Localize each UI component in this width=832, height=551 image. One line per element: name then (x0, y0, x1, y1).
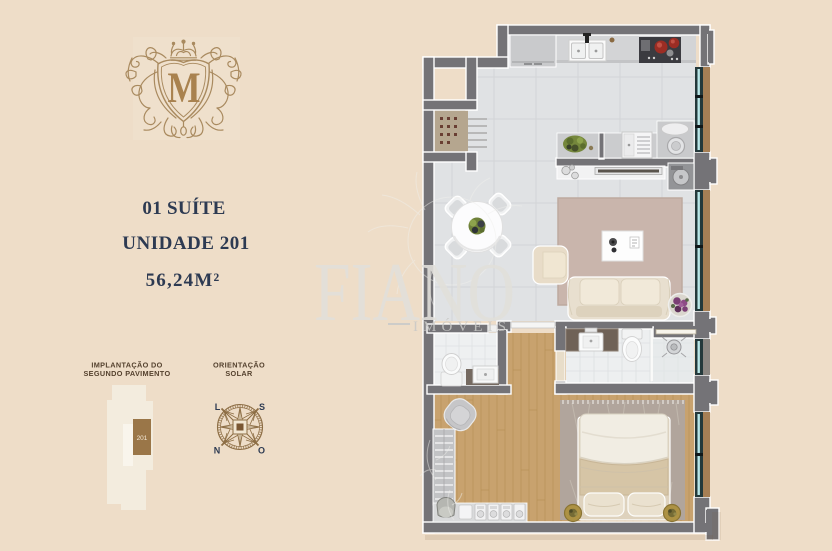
svg-text:201: 201 (137, 435, 148, 442)
svg-text:N: N (214, 446, 221, 456)
svg-text:M: M (168, 65, 201, 112)
svg-text:S: S (259, 402, 265, 412)
svg-text:56,24M²: 56,24M² (146, 270, 221, 291)
svg-text:O: O (258, 446, 265, 456)
svg-text:L: L (215, 402, 221, 412)
svg-text:01 SUÍTE: 01 SUÍTE (142, 197, 225, 219)
svg-text:IMÓVEIS: IMÓVEIS (413, 318, 511, 335)
svg-text:SOLAR: SOLAR (225, 369, 253, 378)
svg-text:UNIDADE 201: UNIDADE 201 (122, 233, 249, 254)
svg-text:SEGUNDO PAVIMENTO: SEGUNDO PAVIMENTO (83, 369, 170, 378)
